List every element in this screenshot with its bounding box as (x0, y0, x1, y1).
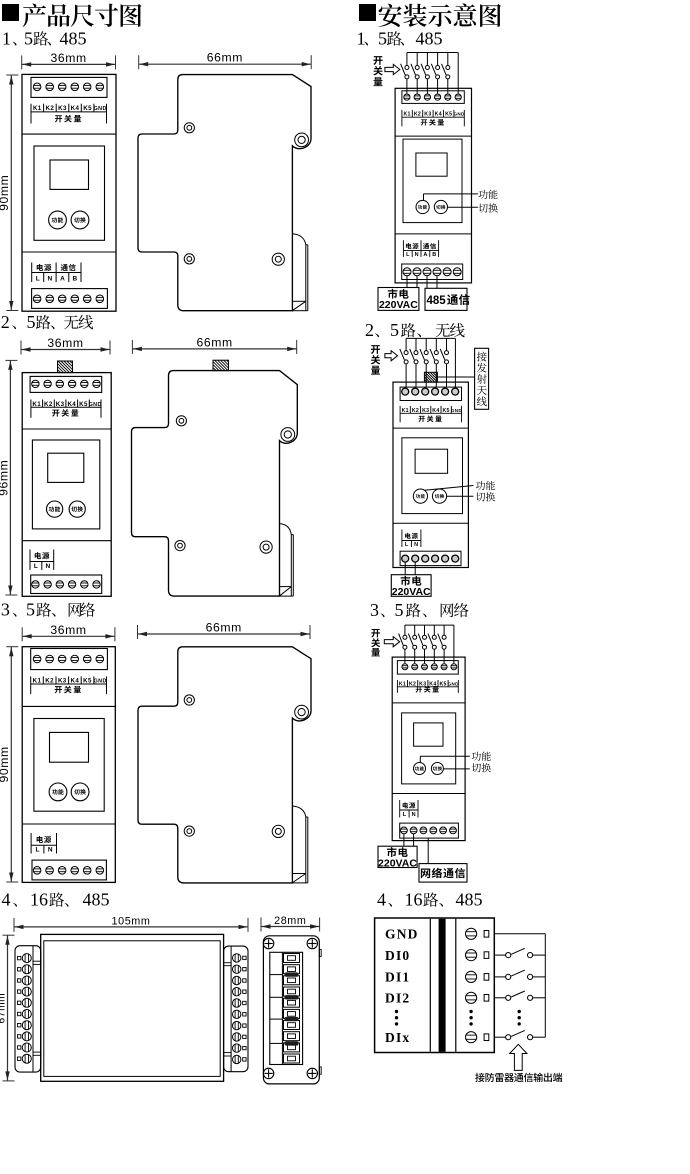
svg-text:485: 485 (427, 295, 447, 307)
svg-text:96mm: 96mm (0, 460, 11, 496)
svg-text:GND: GND (448, 682, 459, 687)
svg-text:A: A (60, 275, 65, 282)
svg-text:K5: K5 (79, 401, 88, 408)
svg-text:485: 485 (60, 28, 87, 48)
svg-text:K5: K5 (439, 682, 446, 688)
svg-text:N: N (414, 542, 418, 548)
svg-text:GND: GND (454, 112, 465, 117)
svg-text:K4: K4 (71, 105, 80, 112)
svg-text:16: 16 (405, 890, 423, 910)
svg-text:K4: K4 (435, 112, 442, 118)
svg-text:3: 3 (1, 600, 10, 620)
svg-text:K4: K4 (67, 401, 76, 408)
svg-text:5: 5 (378, 28, 387, 48)
svg-text:K3: K3 (58, 678, 67, 685)
svg-text:K2: K2 (45, 678, 54, 685)
svg-text:GND: GND (451, 408, 462, 413)
svg-text:K2: K2 (414, 112, 421, 118)
svg-text:DI1: DI1 (385, 970, 410, 985)
svg-text:K3: K3 (424, 112, 431, 118)
svg-text:3: 3 (370, 600, 379, 620)
svg-text:16: 16 (30, 890, 48, 910)
svg-text:GND: GND (385, 927, 419, 942)
svg-text:5: 5 (26, 600, 35, 620)
svg-text:K5: K5 (442, 408, 449, 414)
svg-text:1: 1 (2, 28, 11, 48)
svg-text:K4: K4 (71, 678, 80, 685)
svg-text:105mm: 105mm (111, 915, 150, 927)
svg-text:5: 5 (24, 28, 33, 48)
svg-text:K1: K1 (402, 408, 409, 414)
svg-text:L: L (36, 275, 40, 282)
svg-text:220VAC: 220VAC (379, 299, 418, 311)
svg-text:N: N (48, 847, 53, 854)
svg-text:K5: K5 (83, 678, 92, 685)
svg-text:B: B (73, 275, 78, 282)
svg-text:DIx: DIx (385, 1030, 410, 1045)
svg-text:67mm: 67mm (0, 993, 8, 1024)
svg-text:L: L (34, 563, 38, 570)
svg-text:2: 2 (365, 320, 374, 340)
svg-text:N: N (415, 252, 419, 258)
svg-text:4: 4 (377, 890, 386, 910)
svg-text:4: 4 (2, 890, 11, 910)
svg-text:L: L (36, 847, 40, 854)
svg-text:K5: K5 (83, 105, 92, 112)
svg-text:220VAC: 220VAC (378, 857, 417, 869)
svg-text:K3: K3 (56, 401, 65, 408)
svg-text:K1: K1 (403, 112, 410, 118)
svg-text:K1: K1 (399, 682, 406, 688)
svg-text:K1: K1 (33, 105, 42, 112)
svg-text:485: 485 (416, 28, 443, 48)
svg-text:90mm: 90mm (0, 175, 11, 211)
svg-text:K5: K5 (445, 112, 452, 118)
svg-text:485: 485 (83, 890, 110, 910)
svg-text:1: 1 (357, 28, 366, 48)
svg-text:5: 5 (395, 600, 404, 620)
svg-text:K3: K3 (422, 408, 429, 414)
svg-text:K2: K2 (412, 408, 419, 414)
svg-text:90mm: 90mm (0, 746, 11, 782)
svg-text:36mm: 36mm (47, 336, 83, 350)
svg-text:K2: K2 (409, 682, 416, 688)
svg-text:DI2: DI2 (385, 991, 410, 1006)
svg-text:K4: K4 (429, 682, 436, 688)
svg-text:B: B (432, 252, 436, 258)
svg-text:GND: GND (94, 679, 107, 685)
svg-text:485: 485 (456, 890, 483, 910)
svg-text:K2: K2 (46, 105, 55, 112)
svg-text:DI0: DI0 (385, 948, 410, 963)
svg-text:K1: K1 (32, 401, 41, 408)
svg-text:36mm: 36mm (50, 51, 86, 65)
svg-text:K4: K4 (432, 408, 439, 414)
svg-text:5: 5 (390, 320, 399, 340)
svg-text:66mm: 66mm (206, 621, 242, 635)
svg-text:28mm: 28mm (274, 915, 306, 927)
svg-text:66mm: 66mm (196, 335, 232, 349)
svg-text:N: N (48, 275, 53, 282)
svg-text:220VAC: 220VAC (392, 586, 431, 598)
svg-text:66mm: 66mm (207, 51, 243, 65)
svg-text:5: 5 (27, 312, 36, 332)
svg-text:K2: K2 (44, 401, 53, 408)
svg-text:2: 2 (1, 312, 10, 332)
svg-text:N: N (412, 812, 416, 818)
svg-text:K3: K3 (58, 105, 67, 112)
svg-text:36mm: 36mm (50, 623, 86, 637)
svg-text:A: A (423, 252, 427, 258)
svg-text:GND: GND (89, 402, 102, 408)
svg-text:K1: K1 (33, 678, 42, 685)
svg-text:GND: GND (94, 106, 107, 112)
svg-text:N: N (45, 563, 50, 570)
